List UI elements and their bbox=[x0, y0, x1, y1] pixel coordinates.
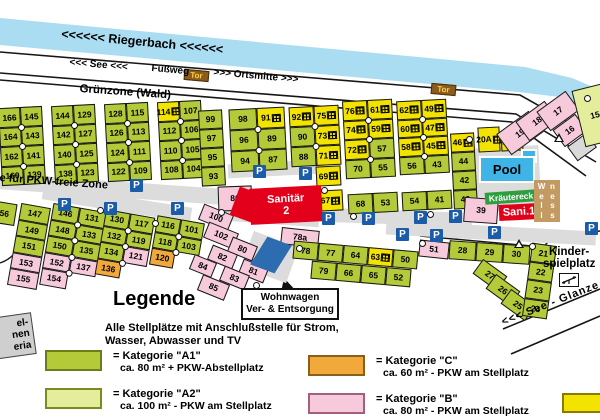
plot-number: 66 bbox=[343, 268, 353, 277]
plot-73: 73 bbox=[314, 125, 340, 146]
plot-number: 68 bbox=[356, 199, 366, 208]
plot-number: 90 bbox=[298, 132, 308, 141]
plot-number: 104 bbox=[186, 164, 201, 173]
plot-number: 153 bbox=[18, 257, 33, 268]
utility-connection-dot bbox=[20, 162, 27, 169]
plot-number: 123 bbox=[80, 168, 95, 177]
plot-number: 109 bbox=[133, 166, 148, 175]
plot-number: 91 bbox=[261, 114, 271, 123]
legend-category-detail: ca. 80 m² - PKW am Stellplatz bbox=[383, 405, 529, 417]
plot-number: 98 bbox=[238, 115, 248, 124]
plot-block: 6249604758455643 bbox=[396, 99, 450, 176]
legend-category-label: = Kategorie "B" bbox=[376, 393, 458, 406]
plot-block: 144129142127140125138123 bbox=[51, 104, 99, 184]
plot-block: 7661745972577055 bbox=[342, 99, 396, 180]
pitch-marker-icon bbox=[412, 142, 421, 150]
playground-label-line2: spielplatz bbox=[543, 258, 595, 270]
plot-number: 21 bbox=[538, 249, 549, 259]
utility-connection-dot bbox=[421, 152, 428, 159]
plot-number: 87 bbox=[268, 155, 278, 164]
plot-91: 91 bbox=[256, 107, 285, 129]
plot-number: 113 bbox=[131, 127, 145, 136]
parking-icon: P bbox=[585, 222, 598, 235]
plot-number: 133 bbox=[81, 229, 96, 240]
plot-number: 94 bbox=[240, 157, 250, 166]
legend-category-detail: ca. 80 m² + PKW-Abstellplatz bbox=[120, 362, 264, 374]
plot-number: 131 bbox=[84, 213, 99, 224]
plot-number: 117 bbox=[134, 218, 149, 229]
plot-number: 17 bbox=[552, 105, 565, 117]
plot-66: 66 bbox=[335, 263, 361, 283]
sign-line3: eria bbox=[13, 339, 32, 353]
plot-number: 147 bbox=[27, 208, 42, 219]
plot-block: 69 bbox=[315, 165, 341, 186]
wellness-building: Wellness bbox=[534, 180, 560, 222]
pitch-marker-icon bbox=[358, 145, 367, 153]
sani-1-label: Sani.1 bbox=[503, 205, 536, 219]
plot-number: 108 bbox=[164, 165, 179, 174]
plot-number: 150 bbox=[52, 240, 67, 251]
gate-tor-2: Tor bbox=[431, 83, 457, 96]
utility-connection-dot bbox=[172, 248, 180, 256]
plot-41: 41 bbox=[427, 190, 453, 210]
plot-50: 50 bbox=[392, 249, 418, 269]
plot-number: 141 bbox=[26, 151, 41, 160]
see-road-line-2 bbox=[511, 316, 600, 354]
parking-icon: P bbox=[414, 211, 427, 224]
plot-61: 61 bbox=[367, 99, 393, 120]
plot-71: 71 bbox=[316, 145, 342, 166]
plot-number: 43 bbox=[432, 160, 442, 169]
plot-number: 59 bbox=[371, 124, 381, 133]
plot-block: 989196899487 bbox=[228, 107, 287, 173]
plot-number: 154 bbox=[46, 273, 61, 284]
utility-connection-dot bbox=[365, 116, 372, 123]
parking-icon: P bbox=[253, 165, 266, 178]
plot-number: 84 bbox=[197, 260, 209, 271]
plot-number: 52 bbox=[393, 273, 403, 282]
plot-number: 80 bbox=[237, 243, 249, 254]
plot-number: 56 bbox=[407, 161, 417, 170]
plot-98: 98 bbox=[228, 108, 257, 130]
plot-number: 69 bbox=[319, 172, 329, 181]
plot-53: 53 bbox=[372, 192, 398, 213]
utility-connection-dot bbox=[97, 207, 104, 214]
campsite-map: 1661451641431621411601391441291421271401… bbox=[0, 0, 600, 420]
pitch-marker-icon bbox=[381, 253, 391, 262]
pitch-marker-icon bbox=[302, 112, 311, 120]
utility-connection-dot bbox=[152, 220, 159, 227]
plot-20A: 20A bbox=[477, 126, 500, 152]
plot-number: 83 bbox=[229, 272, 241, 283]
plot-number: 74 bbox=[346, 126, 356, 135]
plot-number: 82 bbox=[217, 251, 229, 262]
plot-number: 106 bbox=[184, 125, 199, 134]
plot-52: 52 bbox=[385, 267, 411, 287]
plot-block: 99979593 bbox=[198, 109, 226, 186]
plot-number: 155 bbox=[16, 273, 31, 284]
plot-number: 61 bbox=[370, 105, 380, 114]
legend-swatch bbox=[308, 355, 365, 376]
plot-number: 49 bbox=[424, 104, 434, 113]
legend-category-label: = Kategorie "A2" bbox=[113, 388, 201, 401]
pitch-marker-icon bbox=[329, 151, 338, 159]
pitch-marker-icon bbox=[328, 131, 337, 139]
plot-number: 105 bbox=[185, 145, 200, 154]
plot-77: 77 bbox=[317, 243, 343, 263]
plot-number: 85 bbox=[208, 282, 220, 293]
plot-number: 103 bbox=[181, 240, 196, 251]
plot-number: 55 bbox=[378, 163, 388, 172]
pool: Pool bbox=[479, 156, 535, 183]
pitch-marker-icon bbox=[271, 113, 280, 121]
plot-number: 63 bbox=[370, 252, 380, 261]
plot-number: 120 bbox=[155, 252, 170, 263]
plot-number: 134 bbox=[104, 247, 119, 258]
plot-number: 47 bbox=[425, 123, 435, 132]
caravan-disposal-callout: Wohnwagen Ver- & Entsorgung bbox=[241, 288, 339, 320]
plot-number: 23 bbox=[533, 285, 544, 295]
plot-number: 132 bbox=[106, 230, 121, 241]
plot-90: 90 bbox=[290, 126, 316, 147]
pitch-marker-icon bbox=[380, 105, 389, 113]
legend-swatch bbox=[308, 393, 365, 414]
plot-number: 44 bbox=[459, 157, 469, 166]
utility-connection-dot bbox=[218, 209, 225, 216]
legend-category-detail: ca. 60 m² - PKW am Stellplatz bbox=[383, 367, 529, 379]
plot-number: 135 bbox=[79, 245, 94, 256]
pitch-marker-icon bbox=[435, 104, 444, 112]
utility-connection-dot bbox=[529, 243, 536, 250]
plot-65: 65 bbox=[360, 265, 386, 285]
amenities-sign: el- nen eria bbox=[0, 312, 37, 359]
playground-label-line1: Kinder- bbox=[549, 246, 589, 258]
playground-icon bbox=[559, 273, 579, 287]
plot-number: 101 bbox=[184, 224, 199, 235]
plot-block: 927590738871 bbox=[288, 105, 341, 168]
plot-number: 64 bbox=[350, 250, 360, 259]
plot-69: 69 bbox=[315, 165, 341, 186]
utility-connection-dot bbox=[179, 156, 186, 163]
plot-number: 75 bbox=[316, 111, 326, 120]
triangle-marker bbox=[514, 239, 524, 248]
plot-number: 42 bbox=[460, 176, 470, 185]
plot-number: 39 bbox=[476, 206, 486, 215]
plot-number: 53 bbox=[381, 198, 391, 207]
triangle-marker bbox=[554, 133, 564, 142]
plot-number: 152 bbox=[49, 257, 64, 268]
plot-number: 50 bbox=[400, 255, 410, 264]
plot-number: 110 bbox=[163, 146, 177, 155]
plot-64: 64 bbox=[342, 245, 368, 265]
legend-intro-line1: Alle Stellplätze mit Anschlußstelle für … bbox=[105, 322, 339, 335]
legend-partial-swatch bbox=[562, 393, 600, 413]
legend-swatch bbox=[45, 350, 102, 371]
plot-number: 89 bbox=[267, 134, 277, 143]
plot-number: 51 bbox=[429, 245, 439, 254]
legend-category-label: = Kategorie "C" bbox=[376, 355, 458, 368]
utility-connection-dot bbox=[65, 269, 73, 277]
wellness-label-column: Well bbox=[536, 182, 547, 220]
plot-44: 44 bbox=[451, 151, 476, 171]
plot-62: 62 bbox=[396, 100, 422, 120]
plot-number: 97 bbox=[207, 134, 217, 143]
plot-72: 72 bbox=[344, 139, 370, 160]
plot-number: 73 bbox=[318, 131, 328, 140]
pitch-marker-icon bbox=[411, 124, 420, 132]
plot-block: 5441 bbox=[402, 190, 453, 212]
plot-number: 72 bbox=[347, 145, 357, 154]
utility-connection-dot bbox=[321, 187, 328, 194]
utility-connection-dot bbox=[427, 211, 434, 218]
plot-114: 114 bbox=[157, 101, 180, 122]
plot-89: 89 bbox=[257, 128, 286, 150]
plot-number: 130 bbox=[109, 214, 124, 225]
pitch-marker-icon bbox=[331, 196, 340, 204]
parking-icon: P bbox=[58, 198, 71, 211]
plot-number: 118 bbox=[158, 236, 173, 247]
plot-number: 112 bbox=[162, 126, 176, 135]
plot-number: 128 bbox=[108, 109, 123, 118]
plot-number: 149 bbox=[24, 225, 39, 236]
plot-number: 143 bbox=[25, 131, 40, 140]
utility-connection-dot bbox=[367, 155, 374, 162]
parking-icon: P bbox=[171, 202, 184, 215]
plot-number: 115 bbox=[130, 108, 144, 117]
plot-number: 70 bbox=[353, 164, 363, 173]
caravan-callout-line1: Wohnwagen bbox=[261, 292, 320, 304]
utility-connection-dot bbox=[71, 121, 78, 128]
plot-99: 99 bbox=[198, 109, 223, 129]
plot-93: 93 bbox=[201, 166, 226, 186]
parking-icon: P bbox=[104, 202, 117, 215]
plot-number: 77 bbox=[326, 248, 336, 257]
parking-icon: P bbox=[362, 212, 375, 225]
wellness-label-column: ness bbox=[547, 182, 558, 220]
plot-115: 115 bbox=[126, 102, 149, 123]
utility-connection-dot bbox=[350, 213, 357, 220]
plot-number: 62 bbox=[399, 106, 409, 115]
pool-label: Pool bbox=[493, 162, 521, 177]
plot-79: 79 bbox=[310, 261, 336, 281]
plot-number: 111 bbox=[133, 147, 147, 156]
kraeutereck-label: Kräutereck bbox=[488, 190, 533, 203]
plot-63: 63 bbox=[367, 247, 393, 267]
parking-icon: P bbox=[322, 212, 335, 225]
pitch-marker-icon bbox=[381, 124, 390, 132]
plot-number: 76 bbox=[345, 106, 355, 115]
plot-number: 54 bbox=[410, 197, 420, 206]
utility-connection-dot bbox=[466, 136, 473, 143]
plot-number: 29 bbox=[484, 248, 494, 257]
plot-number: 95 bbox=[208, 153, 218, 162]
plot-number: 156 bbox=[0, 208, 10, 219]
parking-icon: P bbox=[449, 210, 462, 223]
pitch-marker-icon bbox=[410, 105, 419, 113]
plot-number: 92 bbox=[292, 112, 302, 121]
plot-number: 96 bbox=[239, 136, 249, 145]
utility-connection-dot bbox=[18, 123, 25, 130]
plot-number: 57 bbox=[377, 144, 387, 153]
plot-number: 125 bbox=[79, 149, 94, 158]
plot-number: 126 bbox=[109, 128, 124, 137]
plot-42: 42 bbox=[452, 170, 477, 190]
plot-92: 92 bbox=[288, 106, 314, 127]
plot-number: 102 bbox=[213, 229, 229, 242]
plot-number: 46 bbox=[453, 138, 463, 147]
pitch-marker-icon bbox=[356, 106, 365, 114]
plot-129: 129 bbox=[73, 104, 96, 125]
plot-28: 28 bbox=[448, 240, 476, 261]
plot-144: 144 bbox=[51, 105, 74, 126]
utility-connection-dot bbox=[419, 240, 426, 247]
parking-icon: P bbox=[396, 228, 409, 241]
parking-icon: P bbox=[488, 226, 501, 239]
plot-29: 29 bbox=[475, 242, 503, 263]
utility-connection-dot bbox=[126, 158, 133, 165]
plot-number: 58 bbox=[401, 143, 411, 152]
utility-connection-dot bbox=[73, 160, 80, 167]
plot-number: 93 bbox=[209, 172, 219, 181]
parking-icon: P bbox=[130, 179, 143, 192]
legend-category-detail: ca. 100 m² - PKW am Stellplatz bbox=[120, 400, 272, 412]
plot-number: 71 bbox=[319, 151, 329, 160]
sanitary-2-label-line2: 2 bbox=[283, 205, 290, 217]
plot-block: 6853 bbox=[348, 192, 399, 215]
sanitary-2-building: Sanitär 2 bbox=[249, 185, 323, 225]
plot-number: 136 bbox=[101, 263, 116, 274]
plot-128: 128 bbox=[104, 103, 127, 124]
plot-number: 148 bbox=[55, 224, 70, 235]
plot-number: 142 bbox=[56, 130, 71, 139]
plot-145: 145 bbox=[20, 106, 43, 127]
plot-number: 114 bbox=[156, 107, 170, 116]
parking-icon: P bbox=[299, 167, 312, 180]
plot-number: 20A bbox=[476, 135, 492, 144]
plot-number: 45 bbox=[426, 141, 436, 150]
plot-number: 65 bbox=[368, 270, 378, 279]
plot-76: 76 bbox=[342, 100, 368, 121]
plot-54: 54 bbox=[402, 191, 428, 211]
plot-block: 20A bbox=[477, 126, 500, 152]
utility-connection-dot bbox=[177, 117, 184, 124]
plot-number: 124 bbox=[110, 148, 125, 157]
plot-number: 88 bbox=[299, 152, 309, 161]
pitch-marker-icon bbox=[357, 125, 366, 133]
plot-number: 116 bbox=[161, 220, 176, 231]
plot-96: 96 bbox=[229, 129, 258, 151]
sanitary-2-label-line1: Sanitär bbox=[267, 192, 305, 206]
plot-number: 41 bbox=[435, 195, 445, 204]
plot-number: 151 bbox=[21, 241, 36, 252]
plot-97: 97 bbox=[199, 128, 224, 148]
plot-number: 107 bbox=[183, 106, 198, 115]
plot-number: 99 bbox=[206, 115, 216, 124]
plot-number: 162 bbox=[4, 152, 19, 161]
plot-95: 95 bbox=[200, 147, 225, 167]
parking-icon: P bbox=[430, 229, 443, 242]
utility-connection-dot bbox=[124, 119, 131, 126]
plot-number: 122 bbox=[111, 167, 126, 176]
plot-number: 144 bbox=[55, 111, 70, 120]
utility-connection-dot bbox=[584, 95, 591, 102]
plot-number: 145 bbox=[24, 112, 39, 121]
legend-category-label: = Kategorie "A1" bbox=[113, 350, 201, 363]
caravan-callout-line2: Ver- & Entsorgung bbox=[246, 304, 334, 316]
plot-57: 57 bbox=[369, 138, 395, 159]
plot-number: 16 bbox=[564, 124, 577, 136]
plot-number: 140 bbox=[57, 150, 72, 159]
pitch-marker-icon bbox=[329, 171, 338, 179]
plot-number: 30 bbox=[511, 250, 521, 259]
pitch-marker-icon bbox=[327, 111, 336, 119]
legend-swatch bbox=[45, 388, 102, 409]
plot-block: 128115126113124111122109 bbox=[104, 102, 152, 182]
plot-number: 166 bbox=[2, 113, 17, 122]
plot-number: 164 bbox=[3, 132, 18, 141]
plot-number: 127 bbox=[78, 129, 93, 138]
pitch-marker-icon bbox=[436, 141, 445, 149]
plot-number: 119 bbox=[131, 235, 146, 246]
plot-number: 121 bbox=[128, 251, 143, 262]
plot-49: 49 bbox=[421, 99, 447, 119]
plot-number: 129 bbox=[77, 110, 92, 119]
plot-88: 88 bbox=[291, 146, 317, 167]
utility-connection-dot bbox=[296, 245, 303, 252]
plot-number: 60 bbox=[400, 124, 410, 133]
utility-connection-dot bbox=[419, 115, 426, 122]
plot-number: 28 bbox=[458, 246, 468, 255]
plot-number: 137 bbox=[76, 261, 91, 272]
legend-intro-line2: Wasser, Abwasser und TV bbox=[105, 335, 241, 348]
plot-number: 15 bbox=[589, 110, 600, 121]
pitch-marker-icon bbox=[436, 123, 445, 131]
legend-title: Legende bbox=[113, 288, 195, 311]
plot-number: 79 bbox=[319, 266, 329, 275]
